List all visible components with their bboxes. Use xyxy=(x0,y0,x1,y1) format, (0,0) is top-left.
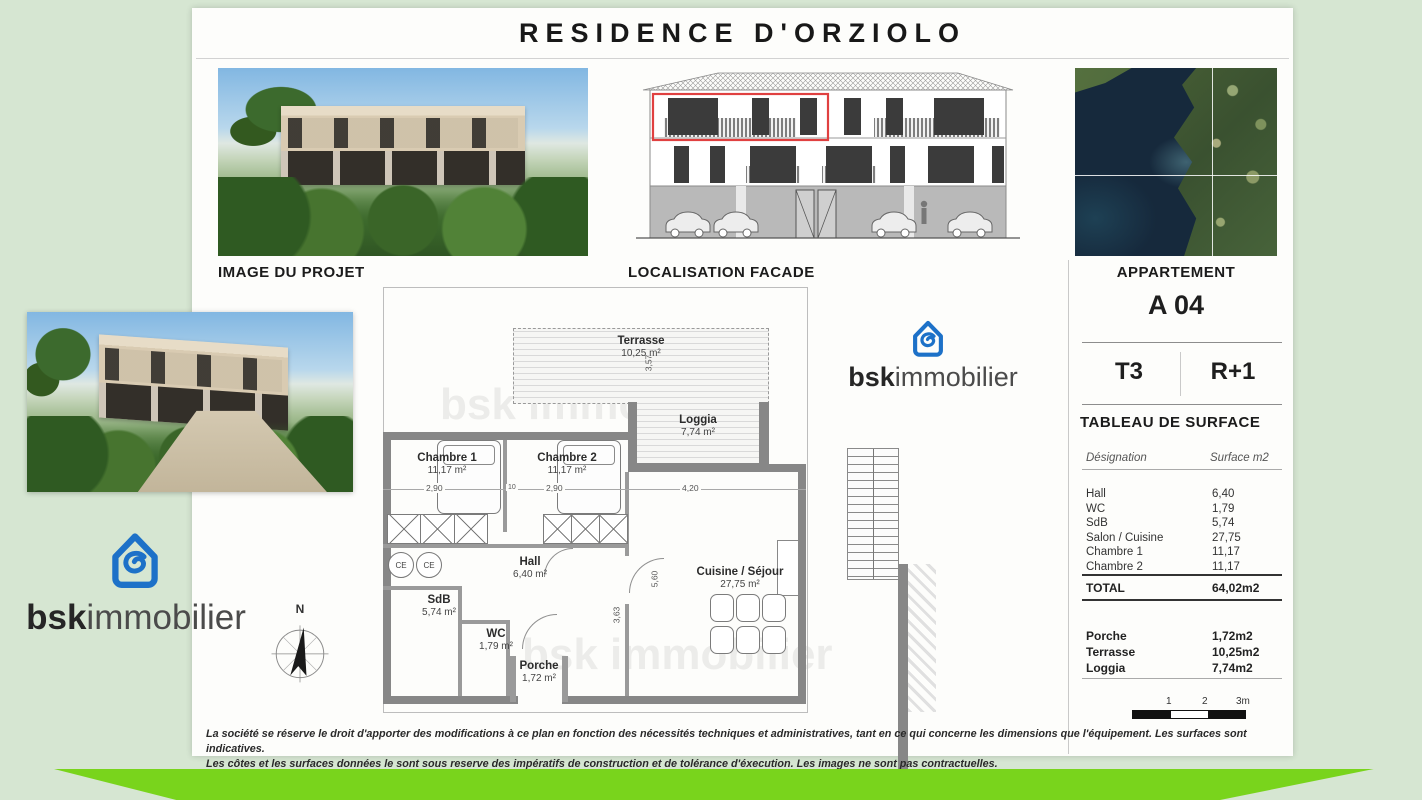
garden-foreground xyxy=(218,177,588,256)
table-row: Loggia7,74m2 xyxy=(1086,660,1274,676)
project-render-image xyxy=(218,68,588,256)
room-label-terrasse: Terrasse 10,25 m² xyxy=(514,335,768,360)
apartment-type: T3 xyxy=(1080,358,1178,386)
ce-marker: CE xyxy=(416,552,442,578)
brand-bold: bsk xyxy=(26,598,86,637)
scale-tick-2: 2 xyxy=(1202,696,1208,707)
col-designation: Désignation xyxy=(1086,452,1147,464)
dim-label: 10 xyxy=(506,484,518,491)
room-name: Loggia xyxy=(637,414,759,427)
map-crosshair-horizontal xyxy=(1075,175,1277,176)
room-area: 1,79 m² xyxy=(468,641,524,653)
brand-wordmark-large: bskimmobilier xyxy=(16,598,256,638)
plan-wall xyxy=(383,432,631,440)
location-map xyxy=(1075,68,1277,256)
room-label-chambre1: Chambre 1 11,17 m² xyxy=(402,452,492,477)
brand-bold: bsk xyxy=(848,362,895,392)
closet-row xyxy=(544,514,628,544)
row-value: 5,74 xyxy=(1212,516,1274,531)
row-value: 11,17 xyxy=(1212,560,1274,575)
room-label-hall: Hall 6,40 m² xyxy=(490,556,570,581)
apartment-code: A 04 xyxy=(1075,290,1277,321)
total-value: 64,02m2 xyxy=(1212,580,1274,596)
page: { "page": { "title": "RESIDENCE D'ORZIOL… xyxy=(0,0,1422,800)
table-row: WC1,79 xyxy=(1086,502,1274,517)
table-header-rule xyxy=(1082,469,1282,470)
row-value: 10,25m2 xyxy=(1212,644,1274,660)
bsk-house-icon xyxy=(905,316,951,362)
apartment-floor: R+1 xyxy=(1184,358,1282,386)
panel-rule xyxy=(1082,342,1282,343)
staircase xyxy=(847,448,899,580)
room-name: Hall xyxy=(490,556,570,569)
chair xyxy=(762,626,786,654)
facade-roof xyxy=(643,73,1013,90)
table-row: Chambre 211,17 xyxy=(1086,560,1274,575)
dim-label: 5,60 xyxy=(649,569,659,590)
room-terrasse: Terrasse 10,25 m² xyxy=(513,328,769,404)
plan-wall xyxy=(769,464,798,472)
table-row: SdB5,74 xyxy=(1086,516,1274,531)
porch-opening xyxy=(518,696,562,704)
row-label: Loggia xyxy=(1086,660,1212,676)
room-area: 27,75 m² xyxy=(660,579,820,591)
chair xyxy=(762,594,786,622)
room-area: 11,17 m² xyxy=(522,465,612,477)
chair xyxy=(710,626,734,654)
scale-tick-1: 1 xyxy=(1166,696,1172,707)
ground-hatch xyxy=(908,564,936,712)
room-area: 6,40 m² xyxy=(490,569,570,581)
closet-cell xyxy=(543,514,572,544)
row-value: 6,40 xyxy=(1212,487,1274,502)
ce-marker: CE xyxy=(388,552,414,578)
room-area: 11,17 m² xyxy=(402,465,492,477)
row-label: WC xyxy=(1086,502,1212,517)
room-area: 5,74 m² xyxy=(404,607,474,619)
dim-label: 4,20 xyxy=(680,483,701,493)
row-label: SdB xyxy=(1086,516,1212,531)
table-row: Salon / Cuisine27,75 xyxy=(1086,531,1274,546)
col-surface: Surface m2 xyxy=(1210,452,1269,464)
room-name: Porche xyxy=(510,660,568,673)
room-loggia: Loggia 7,74 m² xyxy=(628,402,769,472)
compass-icon xyxy=(262,614,338,690)
plan-wall xyxy=(625,604,629,696)
table-row: Terrasse10,25m2 xyxy=(1086,644,1274,660)
title-divider xyxy=(196,58,1289,59)
total-row: TOTAL 64,02m2 xyxy=(1086,580,1274,596)
total-label: TOTAL xyxy=(1086,580,1212,596)
dim-label: 3,63 xyxy=(611,605,621,626)
disclaimer-line1: La société se réserve le droit d'apporte… xyxy=(206,727,1280,757)
table-row: Hall6,40 xyxy=(1086,487,1274,502)
closet-cell xyxy=(387,514,421,544)
room-name: Chambre 2 xyxy=(522,452,612,465)
surface-table: Hall6,40 WC1,79 SdB5,74 Salon / Cuisine2… xyxy=(1086,487,1274,574)
row-value: 27,75 xyxy=(1212,531,1274,546)
table-row: Chambre 111,17 xyxy=(1086,545,1274,560)
row-value: 11,17 xyxy=(1212,545,1274,560)
plan-wall xyxy=(383,696,806,704)
surface-table-title: TABLEAU DE SURFACE xyxy=(1080,414,1260,431)
closet-cell xyxy=(454,514,488,544)
room-label-porche: Porche 1,72 m² xyxy=(510,660,568,685)
closet-cell xyxy=(599,514,628,544)
room-label-sdb: SdB 5,74 m² xyxy=(404,594,474,619)
row-label: Hall xyxy=(1086,487,1212,502)
closet-cell xyxy=(420,514,454,544)
map-crosshair-vertical xyxy=(1212,68,1213,256)
annex-rule xyxy=(1082,678,1282,679)
dim-label: 3,57 xyxy=(643,353,653,374)
room-name: Cuisine / Séjour xyxy=(660,566,820,579)
person-glyph xyxy=(921,201,927,224)
plan-wall xyxy=(383,544,629,548)
scale-segment xyxy=(1170,710,1210,719)
room-label-wc: WC 1,79 m² xyxy=(468,628,524,653)
building-render xyxy=(281,106,525,185)
row-label: Porche xyxy=(1086,628,1212,644)
secondary-render-image xyxy=(27,312,353,492)
plan-wall xyxy=(458,620,510,624)
row-label: Salon / Cuisine xyxy=(1086,531,1212,546)
row-label: Terrasse xyxy=(1086,644,1212,660)
closet-row xyxy=(388,514,488,544)
project-image-label: IMAGE DU PROJET xyxy=(218,264,365,281)
facade-drawing xyxy=(628,68,1028,256)
chair xyxy=(736,626,760,654)
row-value: 7,74m2 xyxy=(1212,660,1274,676)
room-name: SdB xyxy=(404,594,474,607)
table-row: Porche1,72m2 xyxy=(1086,628,1274,644)
type-floor-divider xyxy=(1180,352,1181,396)
room-name: WC xyxy=(468,628,524,641)
facade-label: LOCALISATION FACADE xyxy=(628,264,815,281)
room-area: 10,25 m² xyxy=(514,348,768,360)
total-rule-top xyxy=(1082,574,1282,576)
chair xyxy=(710,594,734,622)
annex-surface-table: Porche1,72m2 Terrasse10,25m2 Loggia7,74m… xyxy=(1086,628,1274,676)
row-value: 1,72m2 xyxy=(1212,628,1274,644)
room-area: 1,72 m² xyxy=(510,673,568,685)
plan-wall xyxy=(383,586,462,590)
brand-light: immobilier xyxy=(86,598,245,637)
row-label: Chambre 2 xyxy=(1086,560,1212,575)
scale-segment xyxy=(1208,710,1246,719)
closet-cell xyxy=(571,514,600,544)
chair xyxy=(736,594,760,622)
brand-light: immobilier xyxy=(895,362,1018,392)
room-label-loggia: Loggia 7,74 m² xyxy=(637,414,759,439)
plan-sheet: RESIDENCE D'ORZIOLO IMAGE DU PROJET xyxy=(192,8,1293,756)
room-name: Chambre 1 xyxy=(402,452,492,465)
apartment-header: APPARTEMENT xyxy=(1075,264,1277,281)
dimension-line xyxy=(383,489,806,490)
building-windows xyxy=(288,118,518,148)
facade-elevation xyxy=(628,68,1028,256)
panel-divider xyxy=(1068,260,1069,754)
panel-rule xyxy=(1082,404,1282,405)
scale-bar: 1 2 3m xyxy=(1132,696,1252,722)
total-rule-bottom xyxy=(1082,599,1282,601)
scale-segment xyxy=(1132,710,1170,719)
dining-set xyxy=(710,594,794,654)
brand-wordmark: bskimmobilier xyxy=(833,362,1033,393)
dim-label: 2,90 xyxy=(424,483,445,493)
room-label-cuisine: Cuisine / Séjour 27,75 m² xyxy=(660,566,820,591)
dim-label: 2,90 xyxy=(544,483,565,493)
room-name: Terrasse xyxy=(514,335,768,348)
room-area: 7,74 m² xyxy=(637,427,759,439)
room-label-chambre2: Chambre 2 11,17 m² xyxy=(522,452,612,477)
scale-tick-3: 3m xyxy=(1236,696,1250,707)
bsk-house-icon xyxy=(100,526,170,596)
page-title: RESIDENCE D'ORZIOLO xyxy=(192,18,1293,49)
row-value: 1,79 xyxy=(1212,502,1274,517)
green-ribbon-banner xyxy=(0,769,1422,800)
disclaimer: La société se réserve le droit d'apporte… xyxy=(206,727,1280,772)
row-label: Chambre 1 xyxy=(1086,545,1212,560)
